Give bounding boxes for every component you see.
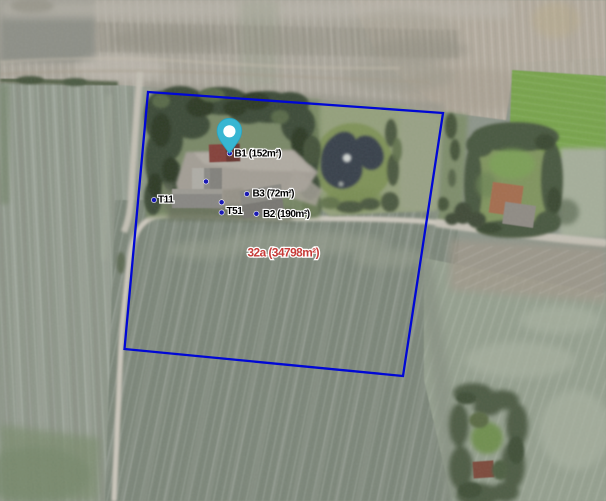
svg-text:T51: T51	[227, 206, 244, 217]
svg-text:B2 (190m²): B2 (190m²)	[263, 209, 310, 220]
svg-text:32a (34798m²): 32a (34798m²)	[248, 246, 320, 260]
svg-text:B1 (152m²): B1 (152m²)	[235, 149, 282, 160]
svg-text:T11: T11	[158, 195, 174, 206]
svg-text:B3 (72m²): B3 (72m²)	[253, 189, 295, 200]
